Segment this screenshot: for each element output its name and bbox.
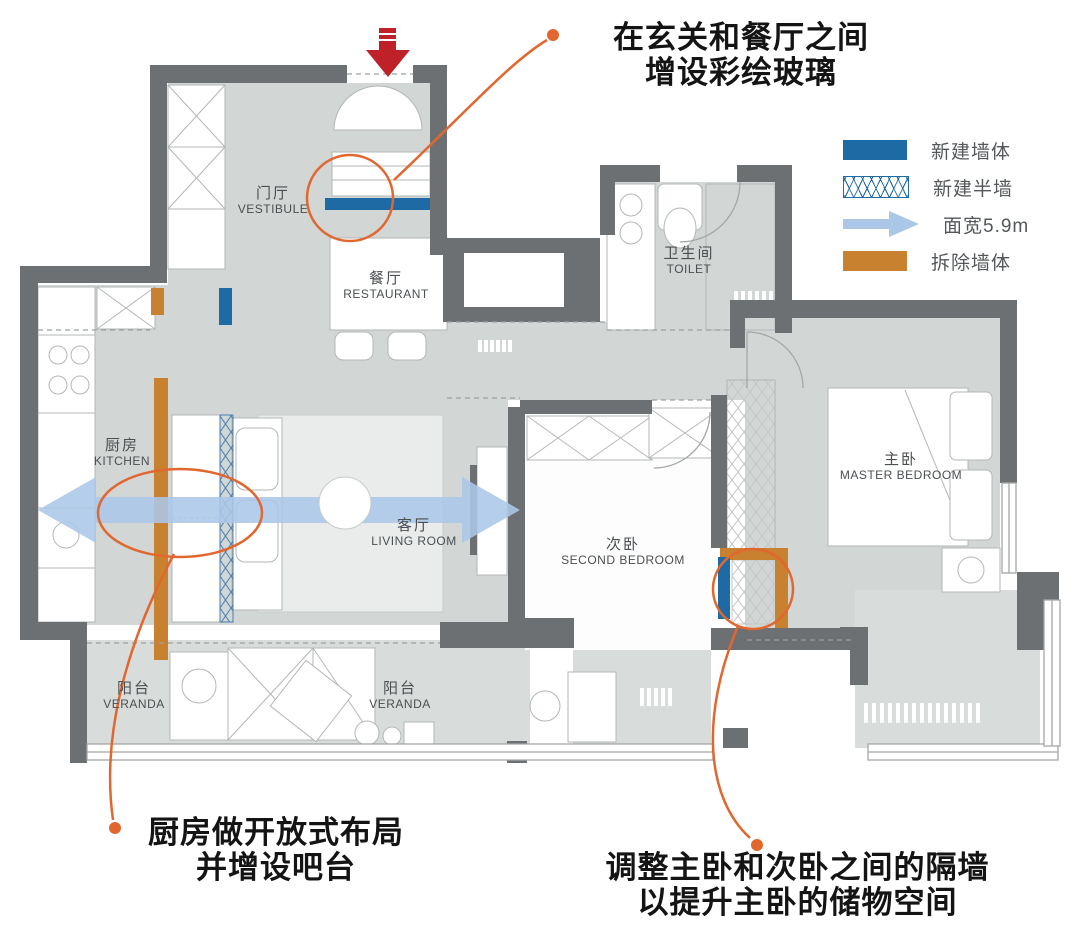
width-arrow-swatch-icon [843,211,919,237]
demolished-wall-kitchen-top [151,288,164,315]
annotation-open-kitchen: 厨房做开放式布局 并增设吧台 [120,815,432,885]
new-wall-stained-glass [325,198,430,210]
annotation-partition: 调整主卧和次卧之间的隔墙 以提升主卧的储物空间 [575,850,1020,920]
floor-plan-page: 门厅 VESTIBULE 餐厅 RESTAURANT 卫生间 TOILET 厨房… [0,0,1079,932]
demolish-wall-swatch-icon [843,251,907,271]
legend-item-width-arrow: 面宽5.9m [843,212,1029,236]
legend-item-demolish-wall: 拆除墙体 [843,249,1029,273]
coffee-table [319,477,371,529]
annotation-stained-glass: 在玄关和餐厅之间 增设彩绘玻璃 [556,20,926,90]
legend: 新建墙体 新建半墙 面宽5.9m 拆除墙体 [843,138,1029,273]
legend-item-new-wall: 新建墙体 [843,138,1029,162]
new-half-wall-swatch-icon [843,176,909,198]
new-wall-swatch-icon [843,140,907,160]
new-wall-dining [219,288,232,325]
half-wall-bedroom [732,560,774,624]
entrance-arrow-icon [366,28,410,77]
legend-item-new-half-wall: 新建半墙 [843,175,1029,199]
